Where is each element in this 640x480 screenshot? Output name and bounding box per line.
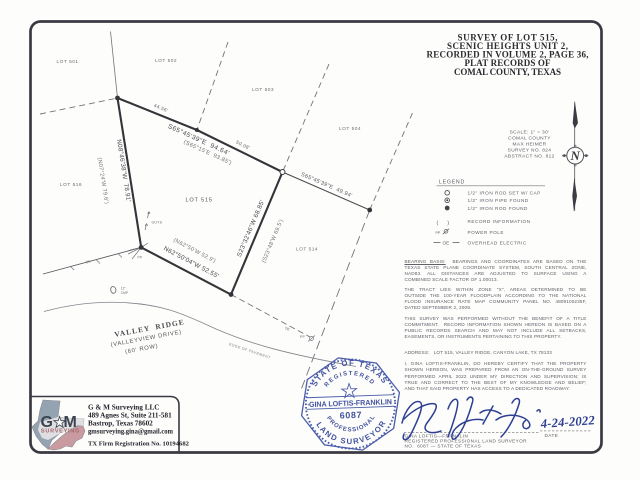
svg-text:N: N — [570, 148, 581, 163]
svg-text:LOT 515: LOT 515 — [186, 198, 213, 204]
svg-text:489 Agnes St, Suite 211-581: 489 Agnes St, Suite 211-581 — [88, 412, 172, 420]
svg-text:1/2" IRON ROD FOUND: 1/2" IRON ROD FOUND — [468, 206, 529, 211]
svg-text:6087: 6087 — [340, 410, 363, 421]
svg-text:MAX HEIMER: MAX HEIMER — [513, 142, 547, 148]
svg-text:LOT 502: LOT 502 — [155, 58, 177, 64]
svg-text:G & M Surveying LLC: G & M Surveying LLC — [88, 404, 159, 412]
svg-text:PP: PP — [138, 256, 143, 260]
svg-text:DATE: DATE — [545, 433, 559, 438]
svg-text:1/2" IRON PIPE FOUND: 1/2" IRON PIPE FOUND — [468, 198, 529, 203]
svg-text:GINA LOFTIS-FRANKLIN: GINA LOFTIS-FRANKLIN — [309, 397, 392, 409]
svg-text:12": 12" — [121, 286, 127, 290]
svg-text:PP: PP — [300, 335, 306, 339]
svg-text:LEGEND: LEGEND — [439, 179, 465, 185]
svg-text:N08°46'38"W 78.91': N08°46'38"W 78.91' — [115, 139, 133, 203]
svg-text:LOT 503: LOT 503 — [252, 87, 274, 93]
svg-text:NO. 6087 — STATE OF TEXAS: NO. 6087 — STATE OF TEXAS — [405, 443, 482, 448]
svg-text:OVERHEAD ELECTRIC: OVERHEAD ELECTRIC — [468, 240, 527, 245]
svg-text:OE: OE — [85, 259, 92, 264]
svg-text:SURVEY NO. 824: SURVEY NO. 824 — [508, 147, 552, 153]
svg-text:LOT 501: LOT 501 — [57, 59, 79, 65]
svg-text:4-24-2022: 4-24-2022 — [539, 413, 596, 431]
svg-text:COMAL COUNTY: COMAL COUNTY — [508, 136, 551, 142]
svg-text:LOT 516: LOT 516 — [60, 182, 82, 188]
svg-text:EDGE OF PAVEMENT: EDGE OF PAVEMENT — [228, 342, 271, 360]
svg-text:LOT 514: LOT 514 — [296, 247, 318, 253]
svg-text:POWER POLE: POWER POLE — [468, 230, 505, 235]
svg-text:1/2" IRON ROD SET W/ CAP: 1/2" IRON ROD SET W/ CAP — [468, 191, 541, 196]
svg-text:OE: OE — [443, 240, 450, 245]
svg-text:SCALE: 1" = 30': SCALE: 1" = 30' — [510, 130, 550, 136]
svg-text:(N07°24'W 79.6'): (N07°24'W 79.6') — [96, 157, 109, 204]
svg-text:Bastrop, Texas 78602: Bastrop, Texas 78602 — [88, 420, 153, 428]
svg-text:SURVEYING: SURVEYING — [41, 428, 80, 434]
svg-text:PP: PP — [436, 231, 441, 235]
svg-text:OE: OE — [284, 326, 291, 332]
svg-text:RECORD INFORMATION: RECORD INFORMATION — [468, 219, 531, 224]
svg-text:( ): ( ) — [437, 221, 450, 227]
svg-text:LOT 504: LOT 504 — [339, 126, 361, 132]
svg-text:(S23°48'W 69.5'): (S23°48'W 69.5') — [261, 218, 285, 263]
svg-text:CMP: CMP — [121, 291, 129, 295]
svg-text:ABSTRACT NO. 812: ABSTRACT NO. 812 — [504, 153, 554, 159]
svg-text:GUYS: GUYS — [152, 221, 163, 225]
svg-text:COMAL COUNTY, TEXAS: COMAL COUNTY, TEXAS — [454, 67, 561, 77]
svg-text:S65°45'39"E 49.94': S65°45'39"E 49.94' — [300, 172, 353, 200]
svg-text:TX Firm Registration No. 10194: TX Firm Registration No. 10194682 — [88, 441, 190, 448]
svg-text:(60' ROW): (60' ROW) — [125, 344, 159, 356]
svg-text:gmsurveying.gina@gmail.com: gmsurveying.gina@gmail.com — [88, 428, 173, 436]
